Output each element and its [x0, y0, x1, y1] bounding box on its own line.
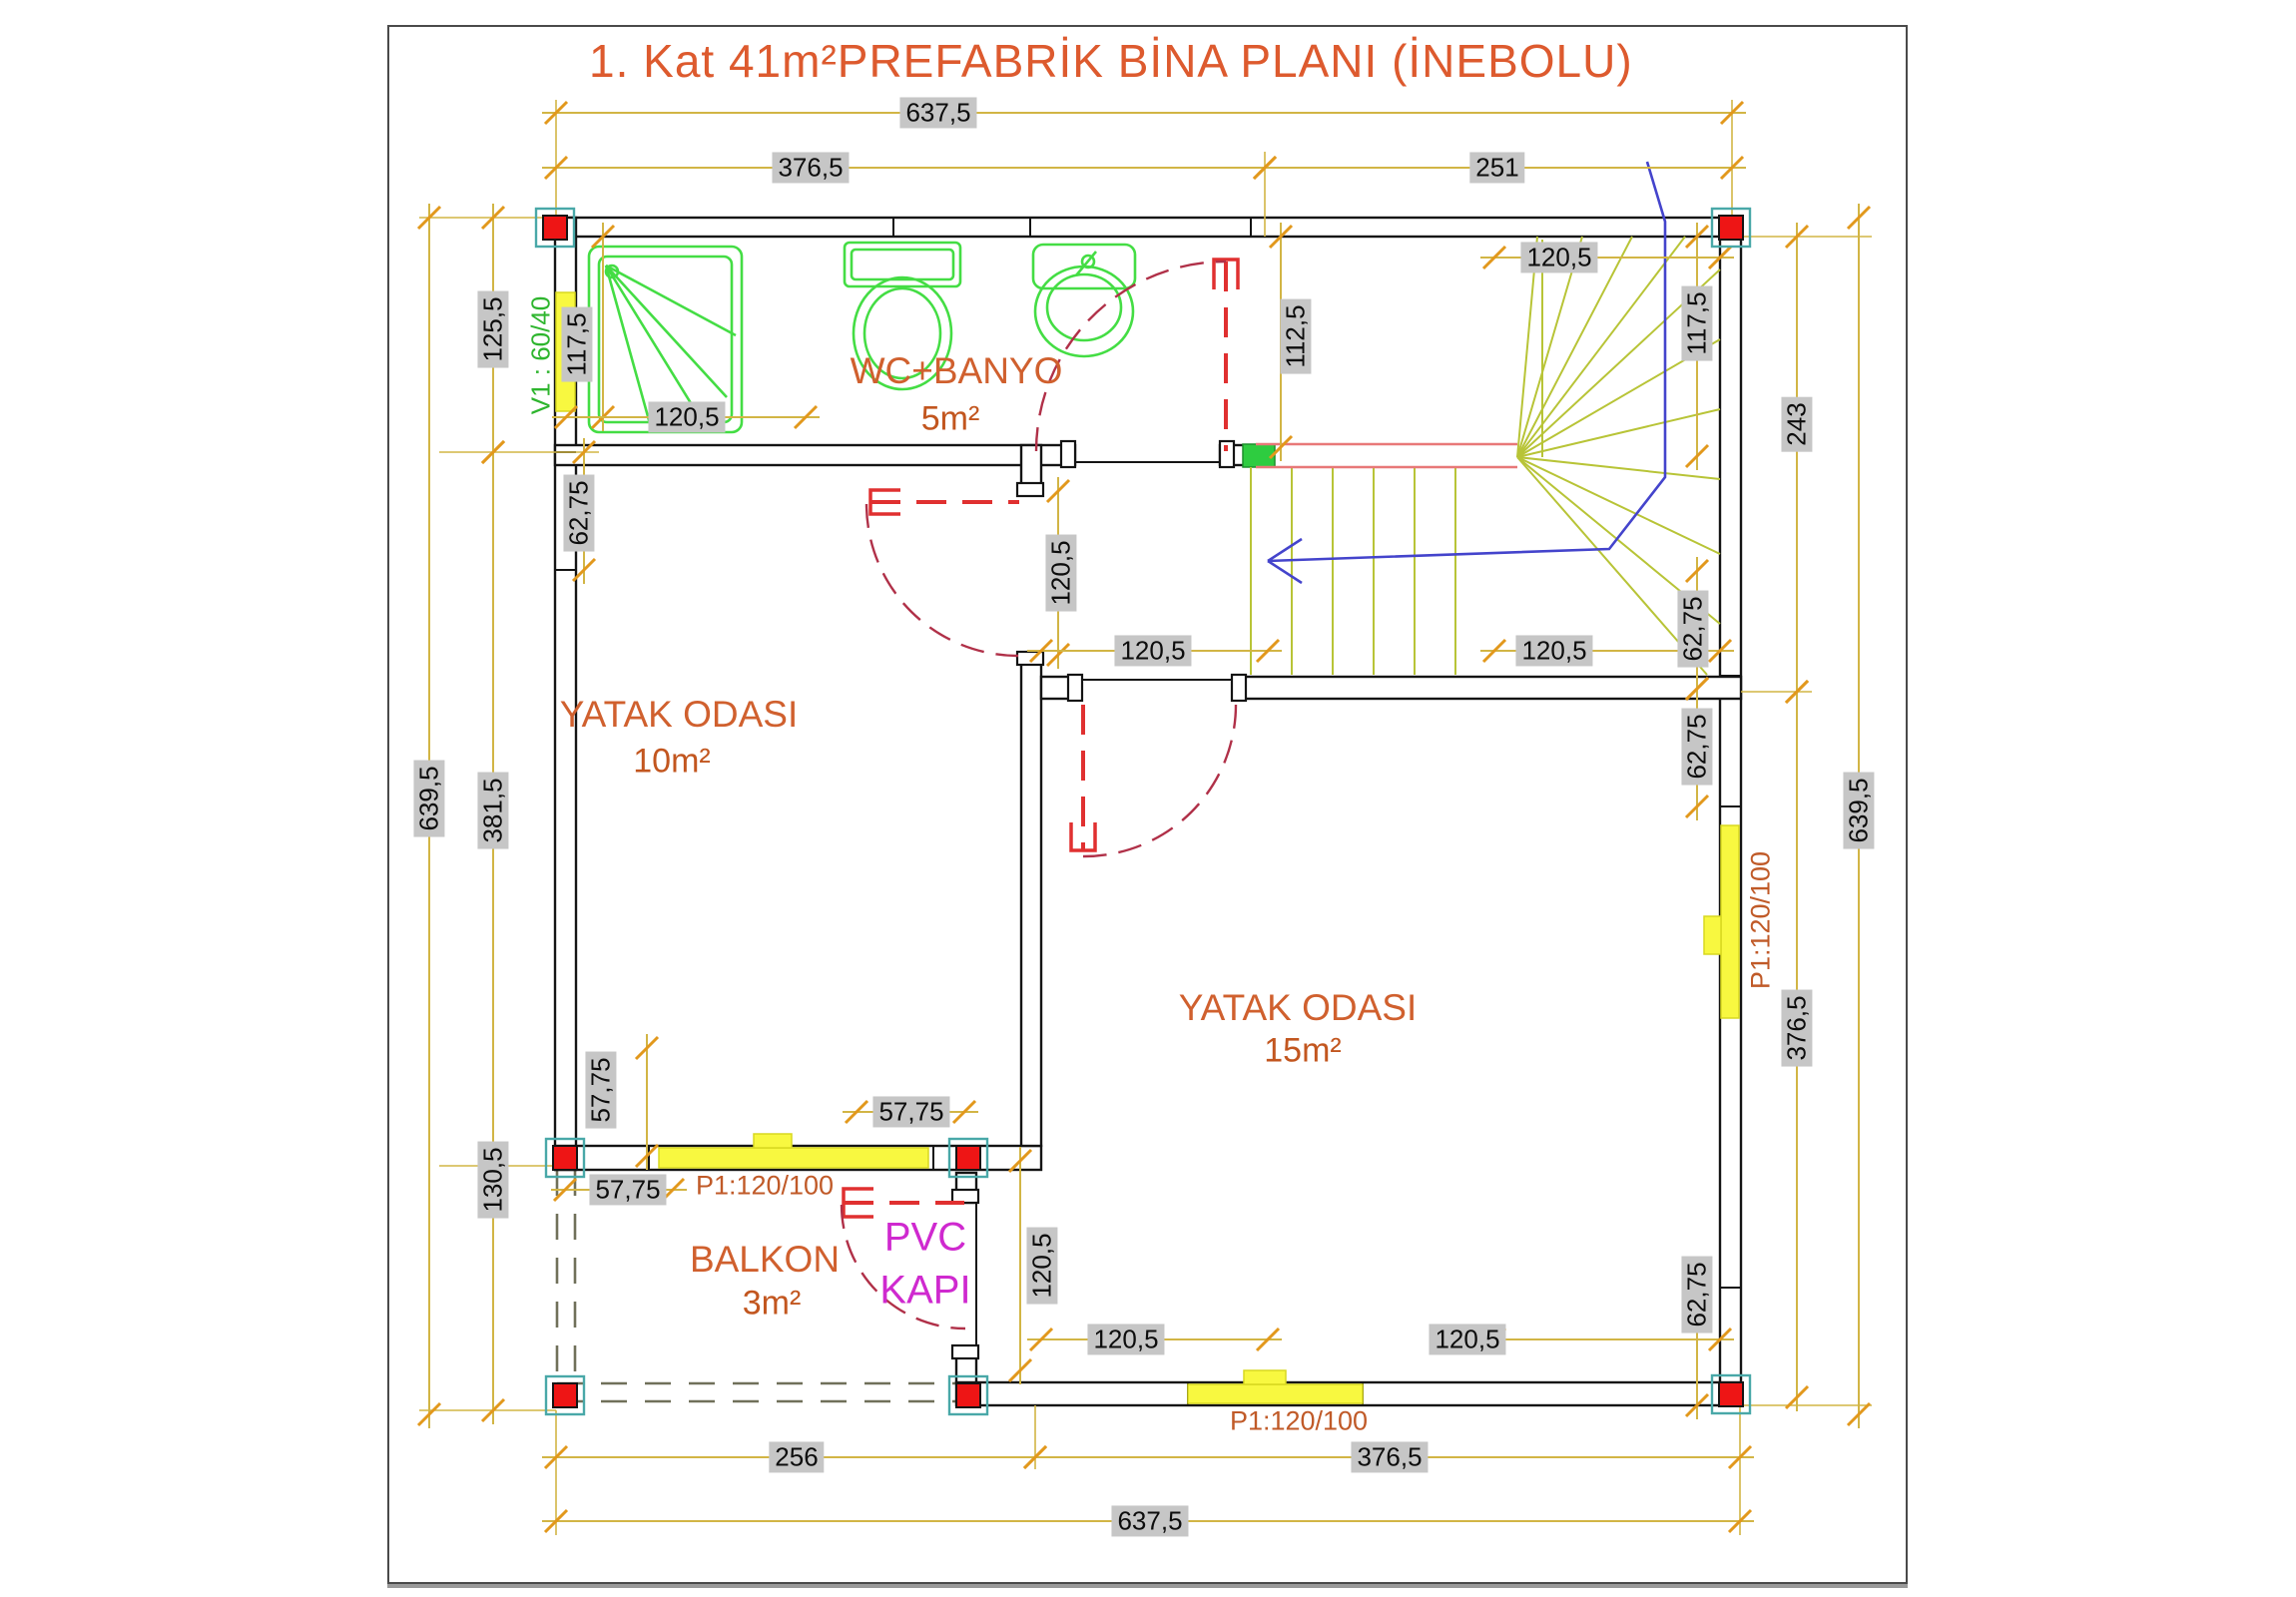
floor-plan-canvas: 1. Kat 41m²PREFABRİK BİNA PLANI (İNEBOLU… [0, 0, 2296, 1597]
door-bed10 [866, 490, 1019, 656]
shower-icon [589, 247, 742, 432]
sink-icon [1033, 245, 1135, 356]
stair-stringer [1256, 444, 1517, 467]
window-right [1721, 825, 1739, 1018]
staircase [1251, 162, 1720, 675]
door-bed15 [1071, 705, 1236, 856]
plan-linework [0, 0, 2296, 1597]
window-balcony-wall [659, 1148, 928, 1168]
toilet-icon [845, 243, 960, 389]
window-v1 [556, 292, 575, 411]
door-balcony [842, 1189, 965, 1329]
door-jambs [952, 441, 1246, 1358]
stair-entry-frame [1243, 444, 1275, 467]
window-bottom [1188, 1384, 1363, 1403]
